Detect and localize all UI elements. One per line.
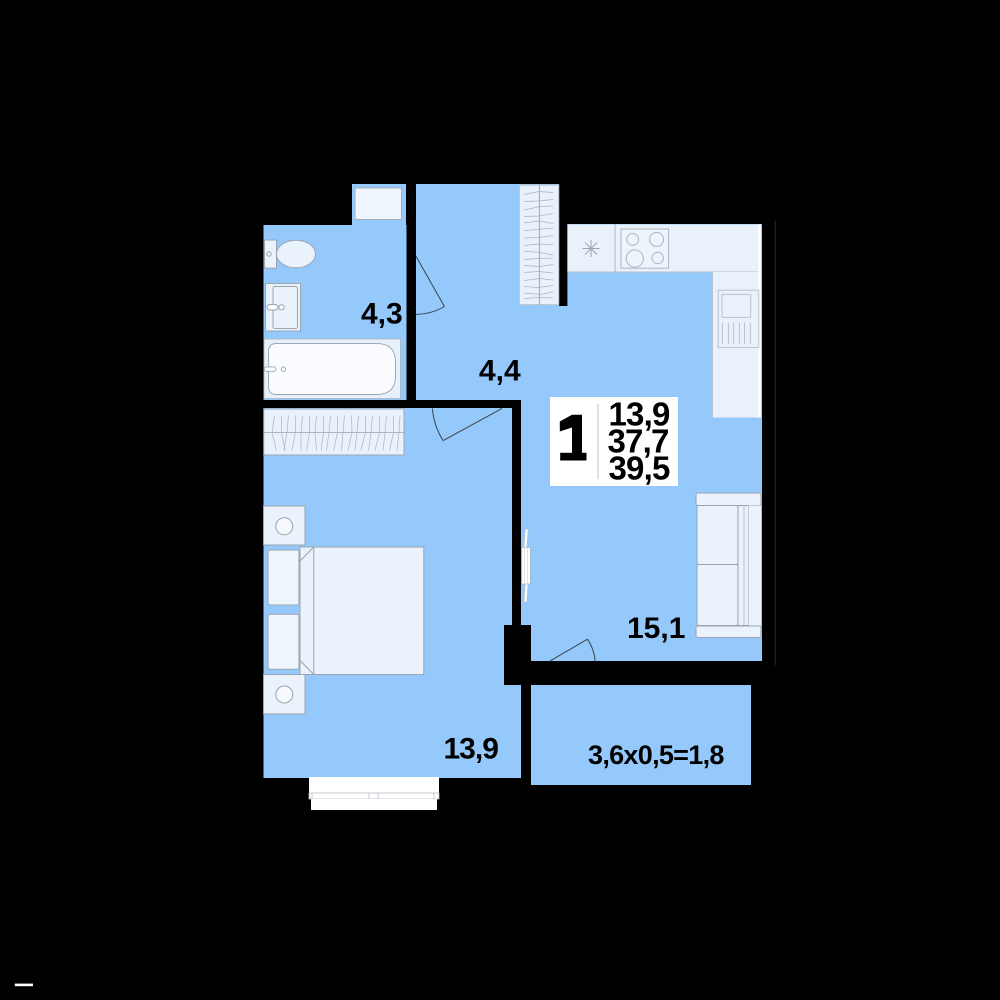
svg-text:4,4: 4,4 bbox=[479, 355, 521, 388]
svg-text:39,5: 39,5 bbox=[609, 450, 670, 487]
svg-text:15,1: 15,1 bbox=[627, 612, 685, 645]
svg-text:13,9: 13,9 bbox=[444, 733, 499, 766]
svg-text:4,3: 4,3 bbox=[361, 298, 403, 331]
svg-text:3,6x0,5=1,8: 3,6x0,5=1,8 bbox=[588, 740, 724, 770]
